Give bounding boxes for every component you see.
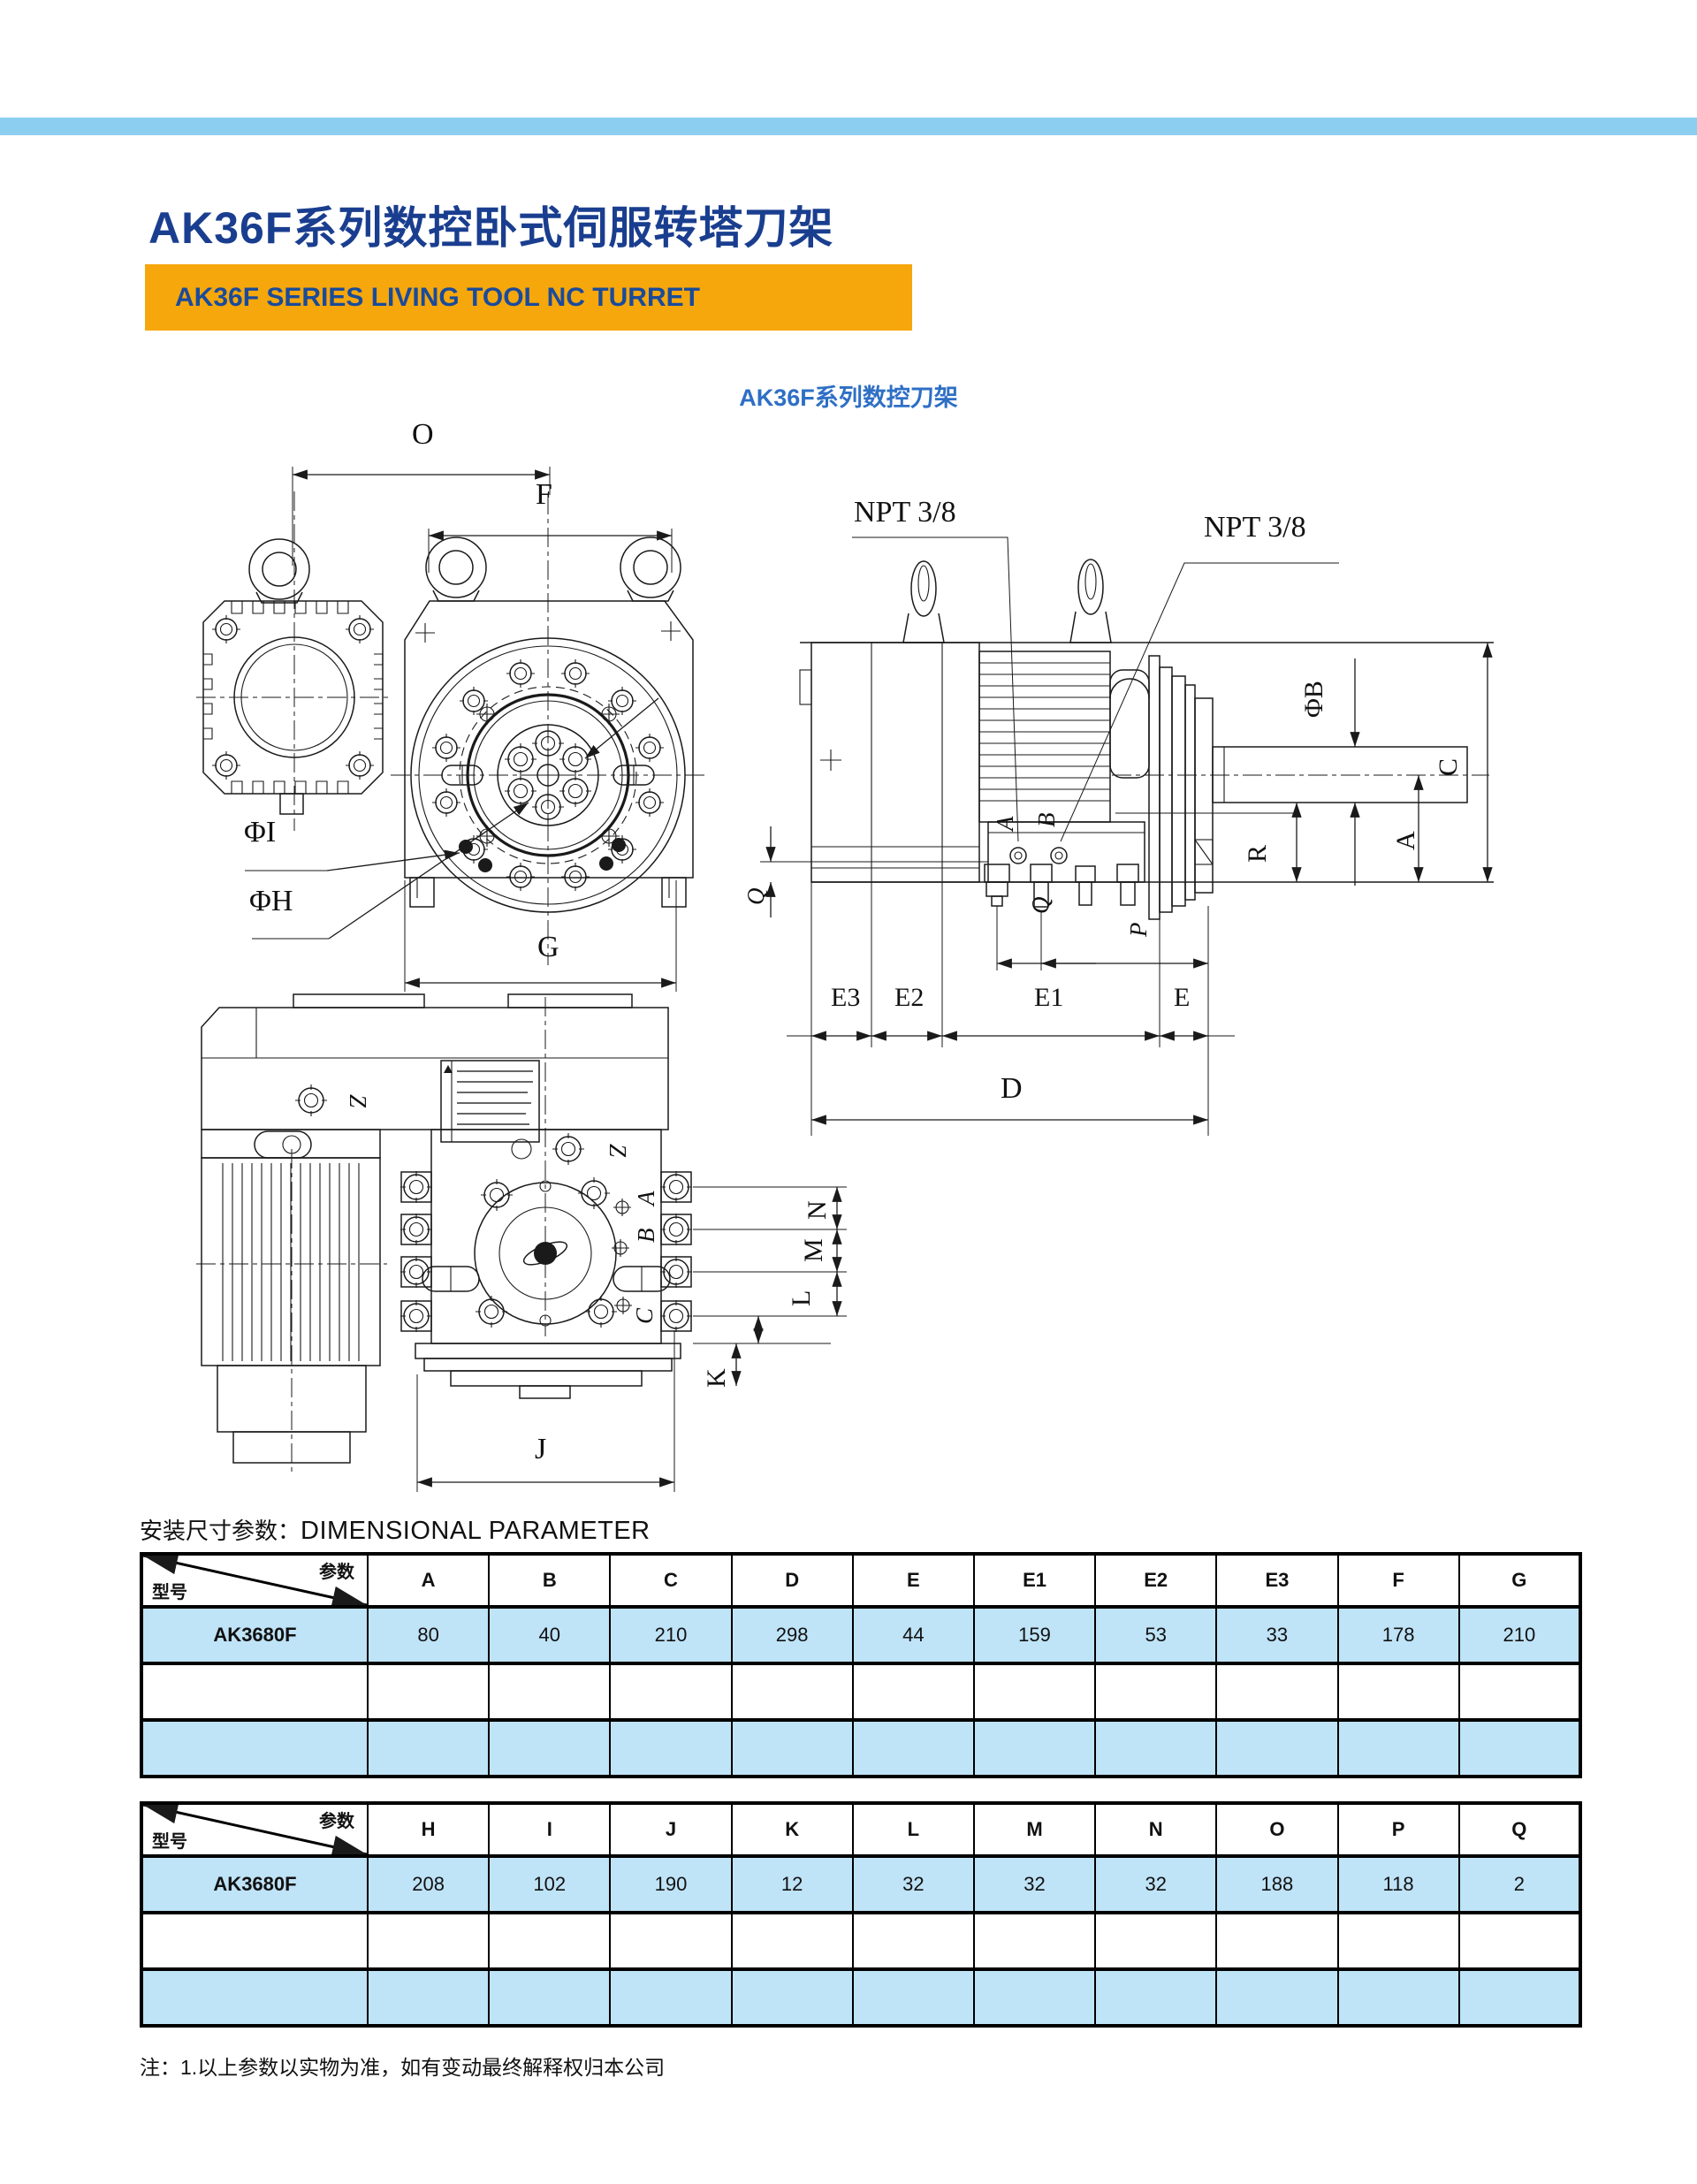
value-cell [1459,1663,1580,1720]
value-cell: 32 [974,1856,1095,1913]
value-cell [853,1913,974,1969]
footnote: 注：1.以上参数以实物为准，如有变动最终解释权归本公司 [140,2051,665,2081]
column-header: F [1338,1554,1459,1607]
value-cell: 210 [1459,1607,1580,1663]
value-cell: 44 [853,1607,974,1663]
value-cell [489,1663,610,1720]
column-header: M [974,1803,1095,1856]
column-header: H [368,1803,489,1856]
corner-label-top: 参数 [319,1807,354,1832]
value-cell: 32 [853,1856,974,1913]
value-cell: 188 [1216,1856,1337,1913]
model-cell [141,1663,368,1720]
dim-label-f: F [536,478,552,511]
value-cell [853,1720,974,1777]
side-view: NPT 3/8 NPT 3/8 [742,496,1494,1136]
dim-label-phi-b: ΦB [1299,681,1328,718]
column-header: O [1216,1803,1337,1856]
value-cell: 2 [1459,1856,1580,1913]
value-cell: 80 [368,1607,489,1663]
value-cell [368,1913,489,1969]
npt-label-top: NPT 3/8 [854,496,956,529]
column-header: L [853,1803,974,1856]
value-cell [1095,1913,1216,1969]
top-view: Z Z [196,994,847,1492]
table-corner-cell: 参数 型号 [141,1803,368,1856]
model-cell [141,1913,368,1969]
dim-label-g: G [537,931,559,963]
dim-label-a: A [1391,831,1420,850]
port-label-a: A [992,816,1018,833]
station-label-b: B [633,1229,659,1244]
value-cell [610,1720,731,1777]
value-cell [1338,1720,1459,1777]
value-cell [1338,1969,1459,2026]
column-header: E2 [1095,1554,1216,1607]
dim-label-r: R [1243,845,1272,863]
column-header: G [1459,1554,1580,1607]
z-label-rear: Z [345,1094,371,1108]
model-cell: AK3680F [141,1856,368,1913]
value-cell: 190 [610,1856,731,1913]
column-header: E1 [974,1554,1095,1607]
value-cell [368,1663,489,1720]
value-cell [610,1969,731,2026]
value-cell: 298 [732,1607,853,1663]
table-corner-cell: 参数 型号 [141,1554,368,1607]
column-header: N [1095,1803,1216,1856]
value-cell [1459,1969,1580,2026]
value-cell [1216,1720,1337,1777]
section-heading: 安装尺寸参数：DIMENSIONAL PARAMETER [140,1513,651,1546]
dim-label-j: J [535,1433,546,1465]
value-cell: 53 [1095,1607,1216,1663]
station-label-c: C [631,1307,658,1324]
value-cell [853,1969,974,2026]
value-cell [1338,1663,1459,1720]
value-cell [610,1663,731,1720]
dim-label-o: O [412,418,434,451]
corner-label-top: 参数 [319,1557,354,1583]
section-heading-cn: 安装尺寸参数： [140,1518,301,1544]
value-cell [974,1969,1095,2026]
front-view: O F [196,418,705,992]
datasheet-page: AK36F系列数控卧式伺服转塔刀架 AK36F SERIES LIVING TO… [0,0,1697,2184]
value-cell [368,1720,489,1777]
station-label-a: A [633,1191,659,1207]
value-cell: 159 [974,1607,1095,1663]
dim-label-phi-i: ΦI [244,816,276,848]
column-header: E3 [1216,1554,1337,1607]
value-cell [1216,1663,1337,1720]
value-cell [974,1720,1095,1777]
value-cell: 118 [1338,1856,1459,1913]
value-cell [1095,1720,1216,1777]
dim-label-p-stud: P [1125,923,1152,939]
dim-label-e1: E1 [1034,983,1063,1012]
value-cell [489,1720,610,1777]
dim-label-k: K [702,1368,731,1388]
value-cell [610,1913,731,1969]
dim-label-e2: E2 [894,983,924,1012]
value-cell: 178 [1338,1607,1459,1663]
value-cell [732,1913,853,1969]
value-cell [489,1913,610,1969]
column-header: J [610,1803,731,1856]
dimension-table-1: 参数 型号 A B C D E E1 E2 E3 F G AK3680F 80 … [140,1552,1582,1778]
value-cell: 40 [489,1607,610,1663]
model-cell [141,1720,368,1777]
value-cell [1216,1969,1337,2026]
value-cell: 33 [1216,1607,1337,1663]
value-cell [1216,1913,1337,1969]
npt-label-right: NPT 3/8 [1204,511,1306,544]
column-header: D [732,1554,853,1607]
column-header: K [732,1803,853,1856]
column-header: B [489,1554,610,1607]
value-cell [1095,1969,1216,2026]
column-header: P [1338,1803,1459,1856]
dim-label-d: D [1001,1072,1023,1105]
value-cell [1459,1913,1580,1969]
dim-label-e3: E3 [831,983,860,1012]
model-cell [141,1969,368,2026]
column-header: E [853,1554,974,1607]
dim-label-phi-h: ΦH [249,885,293,917]
column-header: Q [1459,1803,1580,1856]
corner-label-bottom: 型号 [152,1578,187,1603]
value-cell [732,1969,853,2026]
column-header: A [368,1554,489,1607]
dim-label-l: L [787,1290,816,1306]
value-cell: 12 [732,1856,853,1913]
dim-label-q-stud: Q [1027,897,1054,915]
value-cell: 32 [1095,1856,1216,1913]
corner-label-bottom: 型号 [152,1827,187,1853]
section-heading-en: DIMENSIONAL PARAMETER [301,1517,651,1545]
value-cell [732,1720,853,1777]
value-cell: 102 [489,1856,610,1913]
dim-label-n: N [803,1200,832,1220]
column-header: C [610,1554,731,1607]
value-cell [732,1663,853,1720]
value-cell [974,1913,1095,1969]
value-cell [489,1969,610,2026]
value-cell [1459,1720,1580,1777]
dim-label-c: C [1434,758,1463,776]
model-cell: AK3680F [141,1607,368,1663]
value-cell: 208 [368,1856,489,1913]
value-cell [853,1663,974,1720]
value-cell [1095,1663,1216,1720]
value-cell [974,1663,1095,1720]
value-cell [1338,1913,1459,1969]
port-label-b: B [1033,813,1060,828]
dim-label-q-left: Q [742,888,769,906]
value-cell: 210 [610,1607,731,1663]
dim-label-e: E [1174,983,1190,1012]
z-label-front: Z [605,1144,631,1158]
dim-label-m: M [799,1238,828,1262]
dimension-table-2: 参数 型号 H I J K L M N O P Q AK3680F 208 10… [140,1801,1582,2028]
value-cell [368,1969,489,2026]
column-header: I [489,1803,610,1856]
